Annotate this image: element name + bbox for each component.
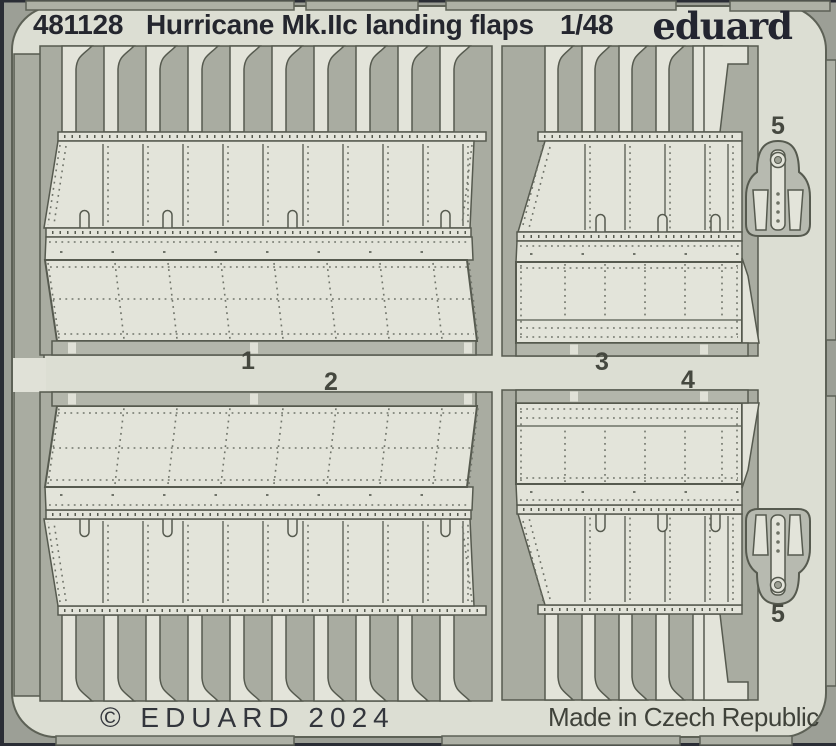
product-title: Hurricane Mk.IIc landing flaps	[146, 9, 534, 40]
part-1-edge-strip	[45, 237, 473, 260]
product-scale: 1/48	[560, 9, 613, 40]
part-2-flap	[40, 392, 492, 701]
eduard-logo: eduard	[652, 4, 792, 48]
part-5-bottom-label: 5	[771, 600, 785, 628]
photo-border-left	[0, 0, 4, 746]
part-2-label: 2	[324, 368, 338, 396]
part-1-flap	[40, 46, 492, 355]
part-1-skin-panel	[45, 260, 477, 341]
part-3-label: 3	[595, 348, 609, 376]
part-4-flap	[502, 390, 759, 700]
frame-web-band	[516, 343, 748, 356]
product-code: 481128	[33, 9, 123, 40]
part-3-skin-panel	[516, 262, 742, 343]
part-3-edge-strip	[516, 241, 742, 262]
part-5-top-label: 5	[771, 112, 785, 140]
pe-fret-illustration: 481128 Hurricane Mk.IIc landing flaps 1/…	[0, 0, 836, 746]
made-in-text: Made in Czech Republic	[548, 702, 819, 732]
part-1-spar-rail	[46, 228, 471, 237]
part-3-rib-band	[518, 141, 742, 232]
photoetch-product-photo: 481128 Hurricane Mk.IIc landing flaps 1/…	[0, 0, 836, 746]
part-5-wedge-right	[788, 190, 803, 230]
part-1-hinge-rail	[58, 132, 486, 141]
copyright-text: © EDUARD 2024	[100, 702, 395, 733]
part-3-hinge-rail	[538, 132, 742, 141]
part-5-hole	[775, 157, 782, 164]
part-1-label: 1	[241, 347, 255, 375]
part-3-flap	[502, 46, 759, 356]
frame-web-band	[52, 341, 476, 355]
part-4-label: 4	[681, 366, 695, 394]
part-5-wedge-left	[753, 190, 768, 230]
